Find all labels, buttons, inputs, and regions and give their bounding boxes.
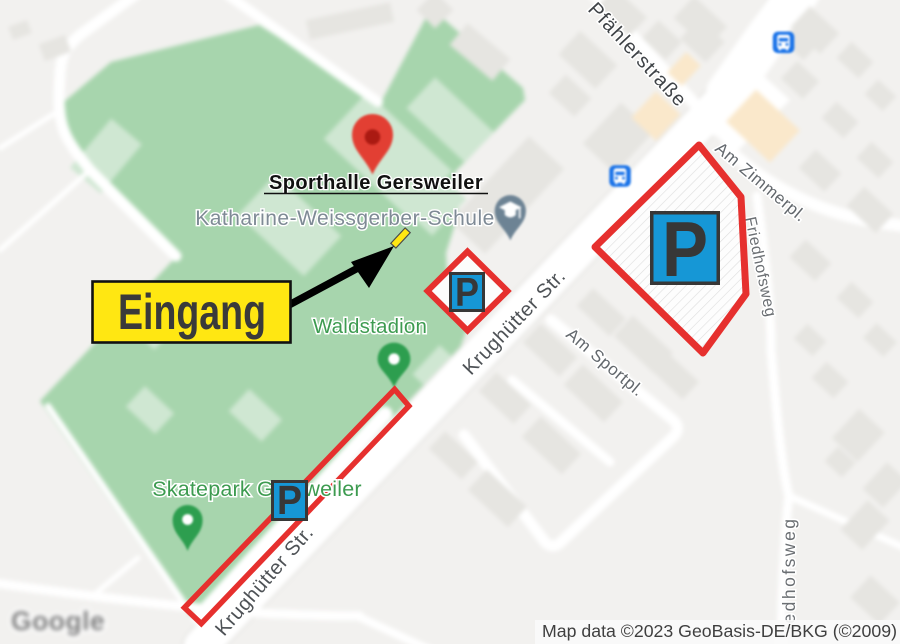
svg-text:P: P — [277, 477, 302, 523]
svg-text:Map data ©2023 GeoBasis-DE/BKG: Map data ©2023 GeoBasis-DE/BKG (©2009) — [542, 621, 897, 641]
svg-text:Eingang: Eingang — [118, 284, 266, 340]
svg-text:P: P — [455, 271, 479, 315]
svg-text:Skatepark Gersweiler: Skatepark Gersweiler — [152, 477, 362, 501]
svg-text:P: P — [662, 205, 708, 293]
